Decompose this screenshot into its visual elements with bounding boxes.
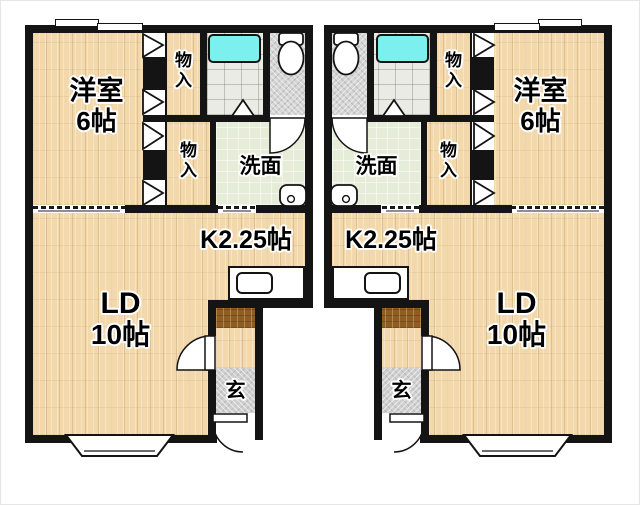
room-label-western: 洋室 — [477, 77, 604, 107]
closet-label-bottom: 物入 — [427, 141, 470, 181]
closet-label-top: 物入 — [167, 51, 200, 91]
entrance-label: 玄 — [216, 380, 255, 402]
entrance-door-swing — [213, 422, 243, 452]
ld-label: LD — [429, 287, 604, 320]
bay-window — [464, 435, 571, 456]
washroom-label: 洗面 — [216, 155, 305, 178]
bath-door-fold — [232, 100, 254, 116]
bay-window — [66, 435, 173, 456]
toilet-door-swing — [332, 118, 367, 153]
toilet-bowl — [334, 42, 359, 75]
floorplan-canvas: 洋室 6帖 物入 物入 洗面 K2.25帖 LD 10帖 玄 — [0, 0, 640, 505]
closet-label-bottom: 物入 — [167, 141, 210, 181]
bathtub — [209, 35, 260, 62]
entrance-label: 玄 — [382, 380, 421, 402]
room-label-western: 洋室 — [33, 77, 160, 107]
wash-basin-drain — [288, 196, 295, 203]
entrance-door-leaf — [390, 414, 424, 422]
bath-door-fold — [383, 100, 405, 116]
wash-basin-drain — [343, 196, 350, 203]
ld-label: LD — [33, 287, 208, 320]
unit-left: 洋室 6帖 物入 物入 洗面 K2.25帖 LD 10帖 玄 — [25, 25, 313, 455]
entrance-door-leaf — [213, 414, 247, 422]
closet-label-top: 物入 — [437, 51, 470, 91]
kitchen-label: K2.25帖 — [185, 227, 307, 255]
room-size-western: 6帖 — [477, 107, 604, 136]
ld-size-label: 10帖 — [429, 320, 604, 351]
toilet-bowl — [279, 42, 304, 75]
bathtub — [377, 35, 428, 62]
washroom-label: 洗面 — [332, 155, 421, 178]
unit-right: 洋室 6帖 物入 物入 洗面 K2.25帖 LD 10帖 玄 — [324, 25, 612, 455]
entrance-door-swing — [394, 422, 424, 452]
toilet-door-swing — [270, 118, 305, 153]
ld-size-label: 10帖 — [33, 320, 208, 351]
kitchen-label: K2.25帖 — [330, 227, 452, 255]
room-size-western: 6帖 — [33, 107, 160, 136]
